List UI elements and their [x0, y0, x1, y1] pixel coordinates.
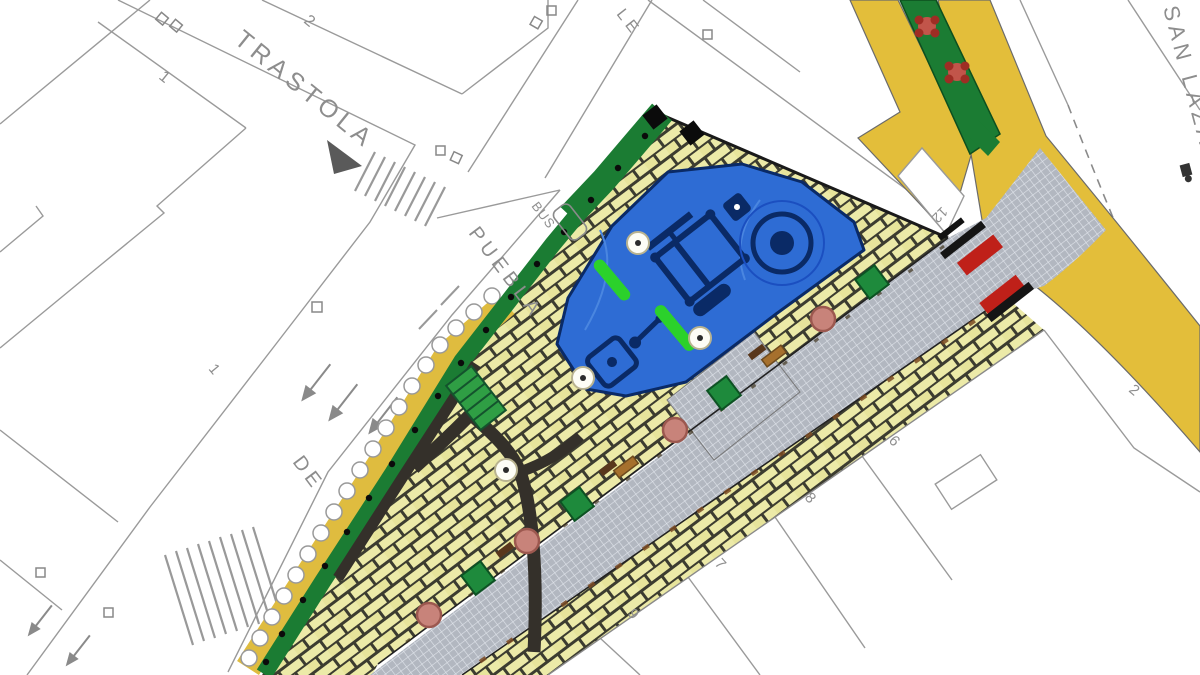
site-plan-canvas: TRASTOLA PUEBLA DE SAN LAZARO BUS LE 1 2… [0, 0, 1200, 675]
flowering-tree-icon [945, 62, 970, 84]
tree-canopy-pink [417, 603, 441, 627]
tree-symbol [627, 232, 649, 254]
tree-canopy-pink [811, 307, 835, 331]
tree-symbol [572, 367, 594, 389]
tree-canopy-pink [663, 418, 687, 442]
tree-symbol [689, 327, 711, 349]
flowering-tree-icon [915, 16, 940, 38]
spinner-icon [740, 201, 824, 285]
tree-canopy-pink [515, 529, 539, 553]
tree-symbol [495, 459, 517, 481]
plan-drawing: TRASTOLA PUEBLA DE SAN LAZARO BUS LE 1 2… [0, 0, 1200, 675]
